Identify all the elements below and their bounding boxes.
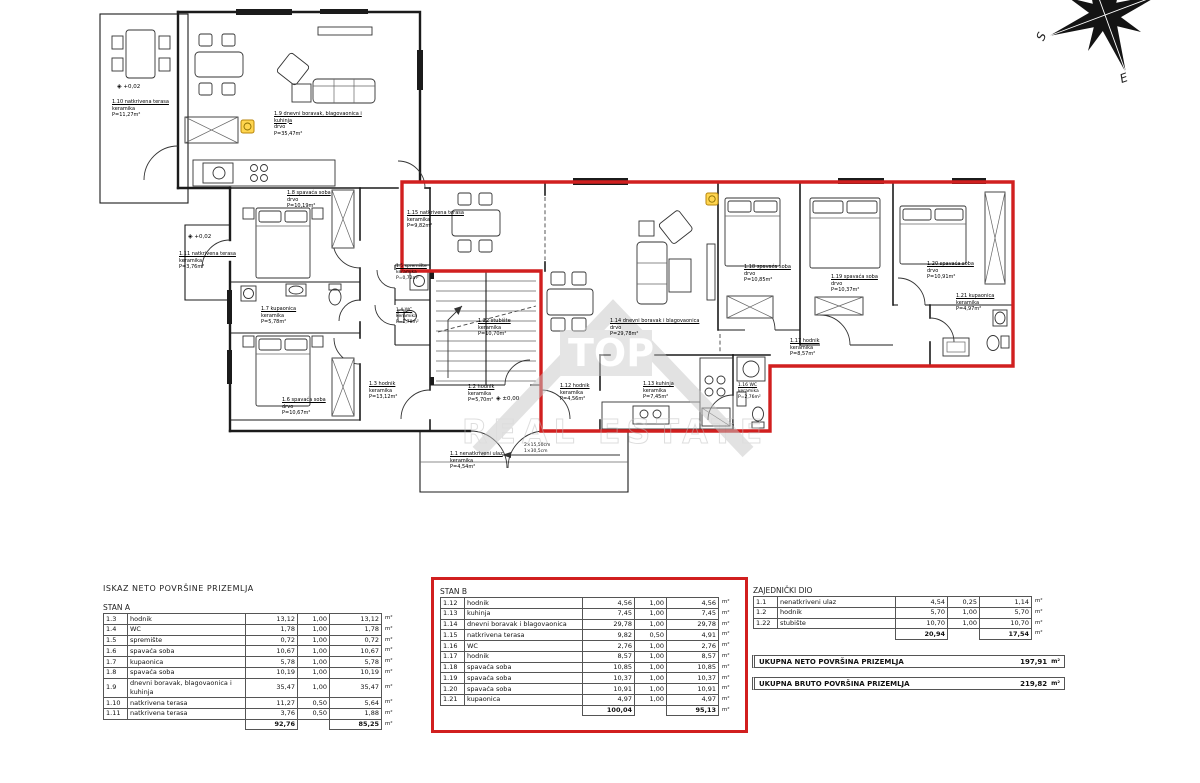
row-id: 1.10 [104, 698, 128, 709]
row-id: 1.20 [441, 684, 465, 695]
row-name: kuhinja [465, 608, 583, 619]
row-coef: 1,00 [298, 657, 330, 668]
total-bruto-value: 219,82 [1020, 680, 1047, 688]
row-id: 1.12 [441, 598, 465, 609]
row-area: 10,37 [583, 673, 635, 684]
room-label-1-11: 1.11 natkrivena terasakeramikaP=3,76m² [179, 251, 236, 271]
row-reduced: 1,14 [980, 597, 1032, 608]
row-name: hodnik [465, 651, 583, 662]
level-marker-icon: ◈ [188, 233, 193, 240]
row-area: 3,76 [246, 708, 298, 719]
row-area: 1,78 [246, 624, 298, 635]
table-row: 1.2 hodnik 5,70 1,00 5,70 m² [754, 607, 1052, 618]
row-id: 1.4 [104, 624, 128, 635]
row-area: 10,67 [246, 646, 298, 657]
row-name: WC [128, 624, 246, 635]
room-label-1-9: 1.9 dnevni boravak, blagovaonica i kuhin… [274, 111, 370, 137]
row-name: natkrivena terasa [465, 630, 583, 641]
row-name: spavaća soba [128, 667, 246, 678]
room-label-1-22: 1.22 stubištekeramikaP=10,70m² [478, 318, 511, 338]
row-unit: m² [1032, 597, 1052, 608]
table-row: 1.9 dnevni boravak, blagovaonica i kuhin… [104, 678, 402, 698]
room-label-1-19: 1.19 spavaća sobadrvoP=10,37m² [831, 274, 878, 294]
row-coef: 1,00 [298, 614, 330, 625]
row-name: spavaća soba [465, 662, 583, 673]
row-unit: m² [719, 608, 739, 619]
main-title: ISKAZ NETO POVRŠINE PRIZEMLJA [103, 584, 405, 593]
row-area: 7,45 [583, 608, 635, 619]
row-reduced: 10,19 [330, 667, 382, 678]
room-label-1-2: 1.2 hodnikkeramikaP=5,70m² [468, 384, 494, 404]
compass-south-label: S [1033, 30, 1049, 43]
row-area: 10,70 [896, 618, 948, 629]
row-reduced: 0,72 [330, 635, 382, 646]
row-name: spavaća soba [465, 684, 583, 695]
total-area: 92,76 [246, 719, 298, 730]
table-row: 1.11 natkrivena terasa 3,76 0,50 1,88 m² [104, 708, 402, 719]
row-coef: 1,00 [635, 608, 667, 619]
row-reduced: 13,12 [330, 614, 382, 625]
stan-b-table: 1.12 hodnik 4,56 1,00 4,56 m² 1.13 kuhin… [440, 597, 739, 716]
row-reduced: 29,78 [667, 619, 719, 630]
row-coef: 1,00 [635, 651, 667, 662]
row-area: 10,19 [246, 667, 298, 678]
row-unit: m² [382, 635, 402, 646]
row-area: 10,85 [583, 662, 635, 673]
stan-a-table: 1.3 hodnik 13,12 1,00 13,12 m² 1.4 WC 1,… [103, 613, 402, 730]
row-coef: 1,00 [298, 646, 330, 657]
row-coef: 0,50 [298, 698, 330, 709]
common-block: ZAJEDNIČKI DIO 1.1 nenatkriveni ulaz 4,5… [753, 586, 1065, 640]
row-id: 1.19 [441, 673, 465, 684]
row-name: WC [465, 641, 583, 652]
row-id: 1.16 [441, 641, 465, 652]
row-reduced: 1,88 [330, 708, 382, 719]
row-coef: 0,50 [635, 630, 667, 641]
row-unit: m² [719, 694, 739, 705]
row-id: 1.9 [104, 678, 128, 698]
total-neto-value: 197,91 [1020, 658, 1047, 666]
row-coef: 1,00 [298, 624, 330, 635]
row-area: 13,12 [246, 614, 298, 625]
row-coef: 1,00 [635, 641, 667, 652]
total-neto-label: UKUPNA NETO POVRŠINA PRIZEMLJA [759, 658, 904, 666]
row-coef: 1,00 [948, 607, 980, 618]
row-area: 10,91 [583, 684, 635, 695]
room-label-1-3: 1.3 hodnikkeramikaP=13,12m² [369, 381, 397, 401]
table-row: 1.22 stubište 10,70 1,00 10,70 m² [754, 618, 1052, 629]
row-id: 1.14 [441, 619, 465, 630]
row-unit: m² [382, 646, 402, 657]
common-table: 1.1 nenatkriveni ulaz 4,54 0,25 1,14 m² … [753, 596, 1052, 640]
room-label-1-10: 1.10 natkrivena terasakeramikaP=11,27m² [112, 99, 169, 119]
row-name: natkrivena terasa [128, 698, 246, 709]
row-area: 4,54 [896, 597, 948, 608]
row-id: 1.7 [104, 657, 128, 668]
row-area: 4,56 [583, 598, 635, 609]
row-reduced: 2,76 [667, 641, 719, 652]
row-coef: 1,00 [635, 694, 667, 705]
stan-a-title: STAN A [103, 603, 405, 612]
row-coef: 1,00 [635, 619, 667, 630]
row-reduced: 1,78 [330, 624, 382, 635]
row-unit: m² [382, 657, 402, 668]
row-unit: m² [382, 624, 402, 635]
row-id: 1.8 [104, 667, 128, 678]
table-row: 1.19 spavaća soba 10,37 1,00 10,37 m² [441, 673, 739, 684]
row-reduced: 35,47 [330, 678, 382, 698]
room-label-1-7: 1.7 kupaonicakeramikaP=5,78m² [261, 306, 296, 326]
step-dimension: 2×15,50cm 1×30,5cm [524, 443, 550, 456]
floorplan-page: .w{stroke:#1b1b1b;stroke-width:2.4;fill:… [0, 0, 1200, 783]
table-row: 1.20 spavaća soba 10,91 1,00 10,91 m² [441, 684, 739, 695]
level-marker-icon: ◈ [117, 83, 122, 90]
room-label-1-5: 1.5 spremištekeramikaP=0,72m² [396, 264, 427, 282]
row-unit: m² [382, 667, 402, 678]
total-row: 100,04 95,13 m² [441, 705, 739, 716]
row-reduced: 10,85 [667, 662, 719, 673]
common-title: ZAJEDNIČKI DIO [753, 586, 1065, 595]
row-name: stubište [778, 618, 896, 629]
table-row: 1.10 natkrivena terasa 11,27 0,50 5,64 m… [104, 698, 402, 709]
row-coef: 1,00 [635, 598, 667, 609]
table-row: 1.7 kupaonica 5,78 1,00 5,78 m² [104, 657, 402, 668]
table-row: 1.15 natkrivena terasa 9,82 0,50 4,91 m² [441, 630, 739, 641]
row-area: 8,57 [583, 651, 635, 662]
row-reduced: 7,45 [667, 608, 719, 619]
row-area: 5,78 [246, 657, 298, 668]
row-area: 11,27 [246, 698, 298, 709]
row-unit: m² [719, 619, 739, 630]
row-reduced: 5,70 [980, 607, 1032, 618]
table-row: 1.6 spavaća soba 10,67 1,00 10,67 m² [104, 646, 402, 657]
row-id: 1.3 [104, 614, 128, 625]
row-id: 1.21 [441, 694, 465, 705]
room-label-1-18: 1.18 spavaća sobadrvoP=10,85m² [744, 264, 791, 284]
row-reduced: 10,37 [667, 673, 719, 684]
row-unit: m² [1032, 607, 1052, 618]
elevation-mark-terrace: ◈ +0,02 [117, 83, 140, 90]
row-unit: m² [719, 598, 739, 609]
row-name: kupaonica [128, 657, 246, 668]
row-id: 1.22 [754, 618, 778, 629]
table-row: 1.8 spavaća soba 10,19 1,00 10,19 m² [104, 667, 402, 678]
room-label-1-17: 1.17 hodnikkeramikaP=8,57m² [790, 338, 820, 358]
row-reduced: 10,70 [980, 618, 1032, 629]
total-bruto-label: UKUPNA BRUTO POVRŠINA PRIZEMLJA [759, 680, 910, 688]
table-row: 1.12 hodnik 4,56 1,00 4,56 m² [441, 598, 739, 609]
row-unit: m² [719, 630, 739, 641]
row-coef: 1,00 [298, 678, 330, 698]
stan-b-title: STAN B [440, 587, 739, 596]
row-reduced: 4,97 [667, 694, 719, 705]
elevation-mark-side: ◈ +0,02 [188, 233, 211, 240]
row-coef: 1,00 [298, 635, 330, 646]
row-id: 1.13 [441, 608, 465, 619]
room-label-1-12: 1.12 hodnikkeramikaP=4,56m² [560, 383, 590, 403]
row-unit: m² [719, 684, 739, 695]
row-name: dnevni boravak, blagovaonica i kuhinja [128, 678, 246, 698]
row-unit: m² [382, 698, 402, 709]
table-row: 1.21 kupaonica 4,97 1,00 4,97 m² [441, 694, 739, 705]
row-reduced: 4,56 [667, 598, 719, 609]
total-area: 20,94 [896, 629, 948, 640]
row-reduced: 8,57 [667, 651, 719, 662]
row-name: spavaća soba [128, 646, 246, 657]
row-coef: 1,00 [635, 662, 667, 673]
total-area: 100,04 [583, 705, 635, 716]
row-reduced: 10,91 [667, 684, 719, 695]
room-label-1-8: 1.8 spavaća sobadrvoP=10,19m² [287, 190, 331, 210]
row-coef: 1,00 [635, 684, 667, 695]
row-id: 1.11 [104, 708, 128, 719]
compass-east-label: E [1118, 70, 1130, 86]
room-label-1-15: 1.15 natkrivena terasakeramikaP=9,82m² [407, 210, 464, 230]
room-label-1-1: 1.1 nenatkriveni ulazkeramikaP=4,54m² [450, 451, 503, 471]
total-bruto-bar: UKUPNA BRUTO POVRŠINA PRIZEMLJA 219,82 m… [752, 677, 1065, 690]
row-area: 4,97 [583, 694, 635, 705]
table-row: 1.3 hodnik 13,12 1,00 13,12 m² [104, 614, 402, 625]
room-label-1-16: 1.16 WCkeramikaP=2,76m² [738, 383, 761, 401]
table-row: 1.4 WC 1,78 1,00 1,78 m² [104, 624, 402, 635]
room-label-1-21: 1.21 kupaonicakeramikaP=4,97m² [956, 293, 994, 313]
table-row: 1.14 dnevni boravak i blagovaonica 29,78… [441, 619, 739, 630]
watermark-brand: TOP [568, 331, 654, 375]
row-id: 1.15 [441, 630, 465, 641]
row-unit: m² [382, 708, 402, 719]
room-label-1-13: 1.13 kuhinjakeramikaP=7,45m² [643, 381, 674, 401]
table-row: 1.17 hodnik 8,57 1,00 8,57 m² [441, 651, 739, 662]
stan-b-block: STAN B 1.12 hodnik 4,56 1,00 4,56 m² 1. [431, 577, 748, 733]
level-marker-icon: ◈ [496, 395, 501, 402]
row-area: 9,82 [583, 630, 635, 641]
row-unit: m² [719, 651, 739, 662]
room-label-1-14: 1.14 dnevni boravak i blagovaonicadrvoP=… [610, 318, 699, 338]
total-neto-bar: UKUPNA NETO POVRŠINA PRIZEMLJA 197,91 m² [752, 655, 1065, 668]
row-id: 1.18 [441, 662, 465, 673]
compass-rose-icon: S E [1033, 0, 1161, 86]
total-row: 92,76 85,25 m² [104, 719, 402, 730]
row-unit: m² [382, 614, 402, 625]
row-area: 29,78 [583, 619, 635, 630]
row-area: 5,70 [896, 607, 948, 618]
row-unit: m² [719, 662, 739, 673]
row-name: kupaonica [465, 694, 583, 705]
row-coef: 0,25 [948, 597, 980, 608]
row-coef: 1,00 [298, 667, 330, 678]
total-reduced: 17,54 [980, 629, 1032, 640]
row-unit: m² [382, 678, 402, 698]
row-coef: 1,00 [635, 673, 667, 684]
row-name: hodnik [778, 607, 896, 618]
row-area: 2,76 [583, 641, 635, 652]
room-label-1-20: 1.20 spavaća sobadrvoP=10,91m² [927, 261, 974, 281]
row-unit: m² [719, 641, 739, 652]
row-area: 35,47 [246, 678, 298, 698]
elevation-mark-entry: ◈ ±0,00 [496, 395, 519, 402]
room-label-1-6: 1.6 spavaća sobadrvoP=10,67m² [282, 397, 326, 417]
row-reduced: 5,64 [330, 698, 382, 709]
row-coef: 1,00 [948, 618, 980, 629]
table-row: 1.16 WC 2,76 1,00 2,76 m² [441, 641, 739, 652]
table-row: 1.5 spremište 0,72 1,00 0,72 m² [104, 635, 402, 646]
row-reduced: 10,67 [330, 646, 382, 657]
total-reduced: 85,25 [330, 719, 382, 730]
row-name: spremište [128, 635, 246, 646]
row-id: 1.2 [754, 607, 778, 618]
row-area: 0,72 [246, 635, 298, 646]
floorplan-drawing: .w{stroke:#1b1b1b;stroke-width:2.4;fill:… [0, 0, 1200, 565]
row-id: 1.5 [104, 635, 128, 646]
stan-a-block: ISKAZ NETO POVRŠINE PRIZEMLJA STAN A 1.3… [103, 584, 405, 730]
row-name: spavaća soba [465, 673, 583, 684]
row-id: 1.17 [441, 651, 465, 662]
row-coef: 0,50 [298, 708, 330, 719]
row-name: nenatkriveni ulaz [778, 597, 896, 608]
row-name: dnevni boravak i blagovaonica [465, 619, 583, 630]
table-row: 1.1 nenatkriveni ulaz 4,54 0,25 1,14 m² [754, 597, 1052, 608]
total-reduced: 95,13 [667, 705, 719, 716]
row-reduced: 5,78 [330, 657, 382, 668]
table-row: 1.13 kuhinja 7,45 1,00 7,45 m² [441, 608, 739, 619]
row-id: 1.6 [104, 646, 128, 657]
watermark-text: REAL ESTATE [462, 412, 768, 451]
row-unit: m² [1032, 618, 1052, 629]
row-name: hodnik [465, 598, 583, 609]
table-row: 1.18 spavaća soba 10,85 1,00 10,85 m² [441, 662, 739, 673]
row-name: natkrivena terasa [128, 708, 246, 719]
row-unit: m² [719, 673, 739, 684]
row-name: hodnik [128, 614, 246, 625]
row-id: 1.1 [754, 597, 778, 608]
row-reduced: 4,91 [667, 630, 719, 641]
room-label-1-4: 1.4 WCkeramikaP=1,78m² [396, 308, 419, 326]
total-row: 20,94 17,54 m² [754, 629, 1052, 640]
